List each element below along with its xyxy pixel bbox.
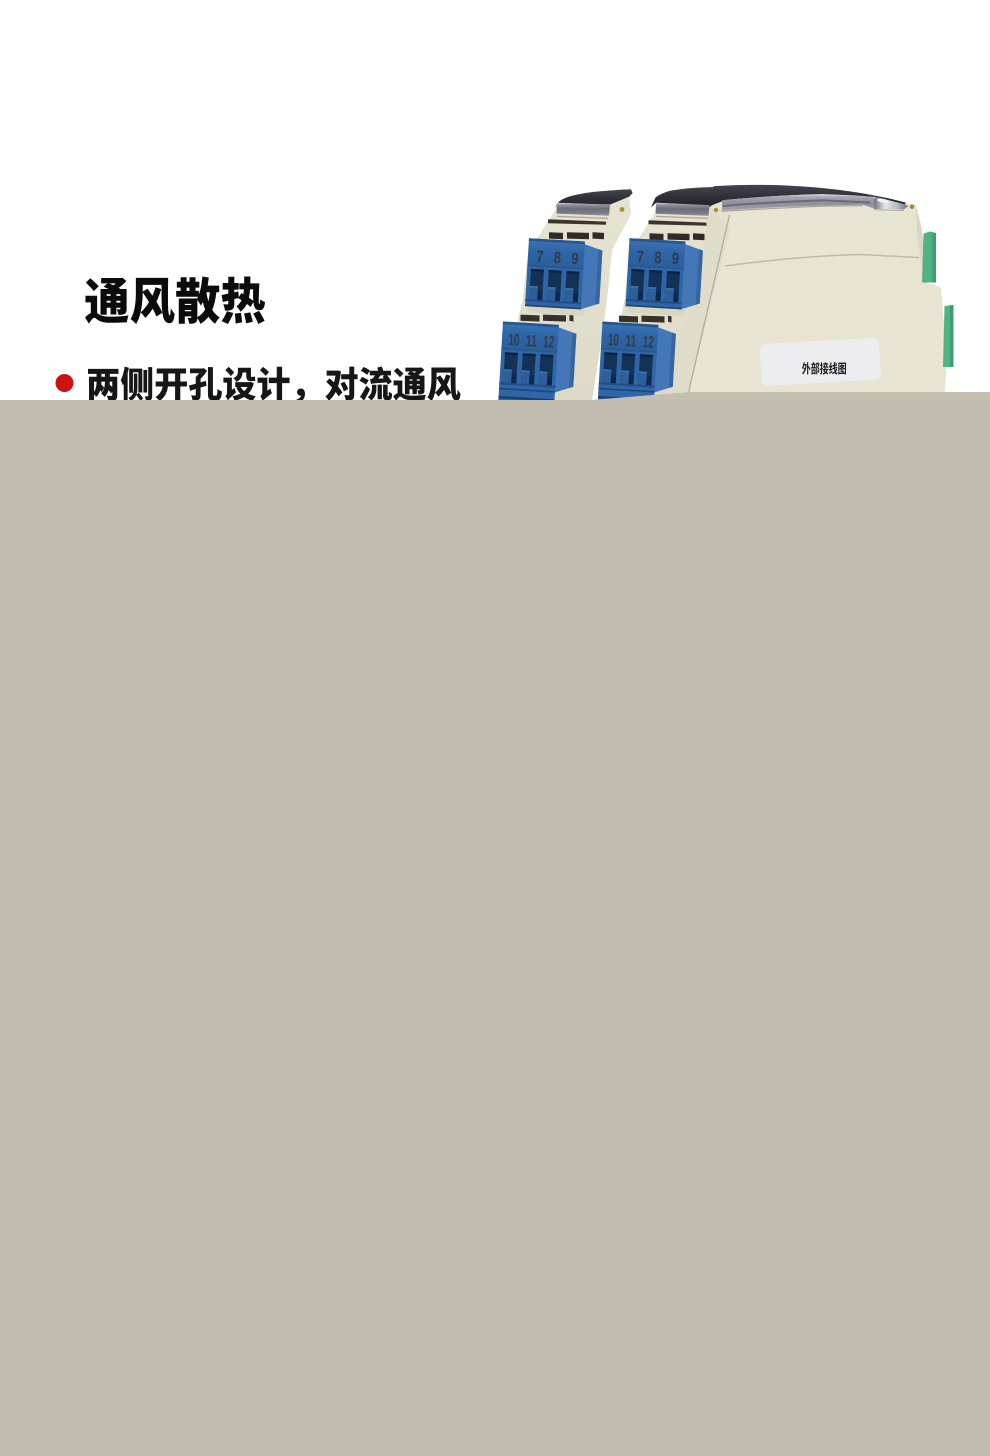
svg-text:10: 10: [508, 331, 520, 350]
svg-text:11: 11: [625, 332, 637, 351]
svg-text:12: 12: [642, 333, 654, 352]
svg-text:8: 8: [553, 249, 561, 267]
svg-text:9: 9: [671, 250, 679, 268]
svg-text:11: 11: [525, 332, 537, 351]
svg-text:12: 12: [543, 333, 555, 352]
svg-text:8: 8: [654, 249, 662, 267]
svg-text:9: 9: [571, 250, 579, 268]
svg-text:10: 10: [607, 331, 619, 350]
svg-text:7: 7: [536, 248, 544, 266]
svg-text:7: 7: [636, 248, 644, 266]
